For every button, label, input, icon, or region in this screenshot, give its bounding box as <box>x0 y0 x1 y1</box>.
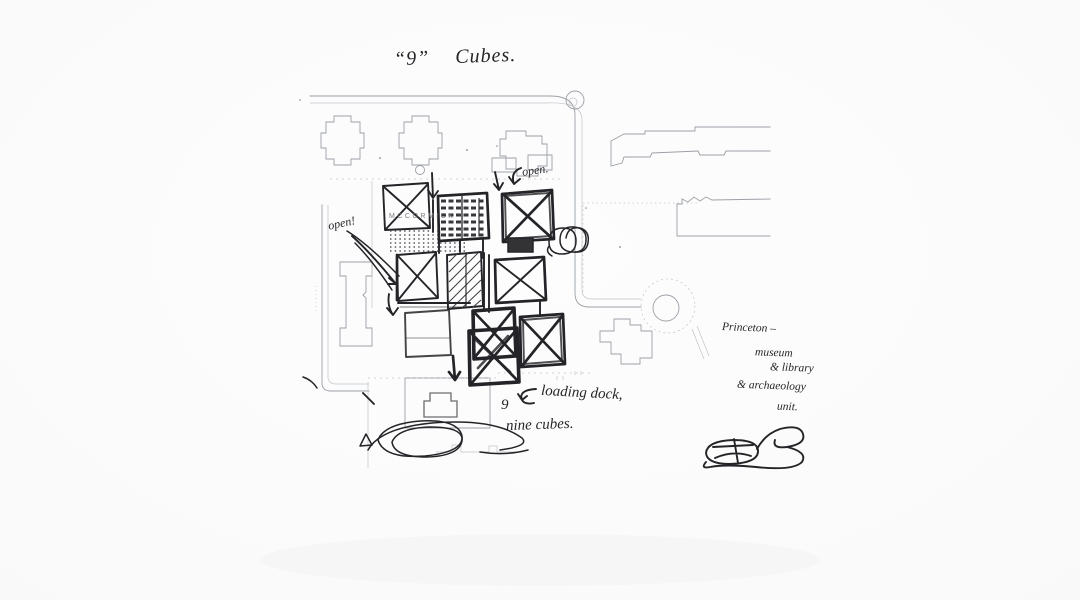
diagonal-strokes-arrow <box>347 231 399 290</box>
princeton-note-line: unit. <box>777 401 798 414</box>
sketch-photo: “9”Cubes. open. open! MCCORMICK loading … <box>0 0 1080 600</box>
title-annotation: “9”Cubes. <box>394 44 517 71</box>
title-cubes-word: Cubes. <box>455 44 517 68</box>
mccormick-label: MCCORMICK <box>389 213 455 220</box>
princeton-note-line: Princeton – <box>722 321 776 335</box>
princeton-note-line: & archaeology <box>737 379 806 393</box>
princeton-note-line: & library <box>770 361 814 375</box>
down-arrow <box>449 356 460 380</box>
title-gap <box>429 63 455 64</box>
paper-shadow <box>260 534 820 586</box>
architect-monogram-signature <box>704 427 804 468</box>
stray-stroke <box>303 377 317 388</box>
down-arrow <box>428 173 438 198</box>
hatch-texture <box>449 253 481 308</box>
overlapping-ellipses-scribble <box>360 421 528 457</box>
curved-left-arrow <box>518 389 536 404</box>
down-arrow <box>494 172 503 190</box>
site-plan-sketch-svg <box>0 0 1080 600</box>
circular-plaza <box>641 279 695 333</box>
title-quote-nine: “9” <box>394 47 430 70</box>
princeton-note-line: museum <box>755 346 793 359</box>
site-plan-layer <box>299 91 770 468</box>
roundabout-circle <box>566 91 584 109</box>
nine-digit-note: 9 <box>501 397 509 414</box>
nine-cubes-note: nine cubes. <box>506 416 574 435</box>
check-stroke <box>363 393 374 404</box>
solid-block <box>508 238 533 252</box>
